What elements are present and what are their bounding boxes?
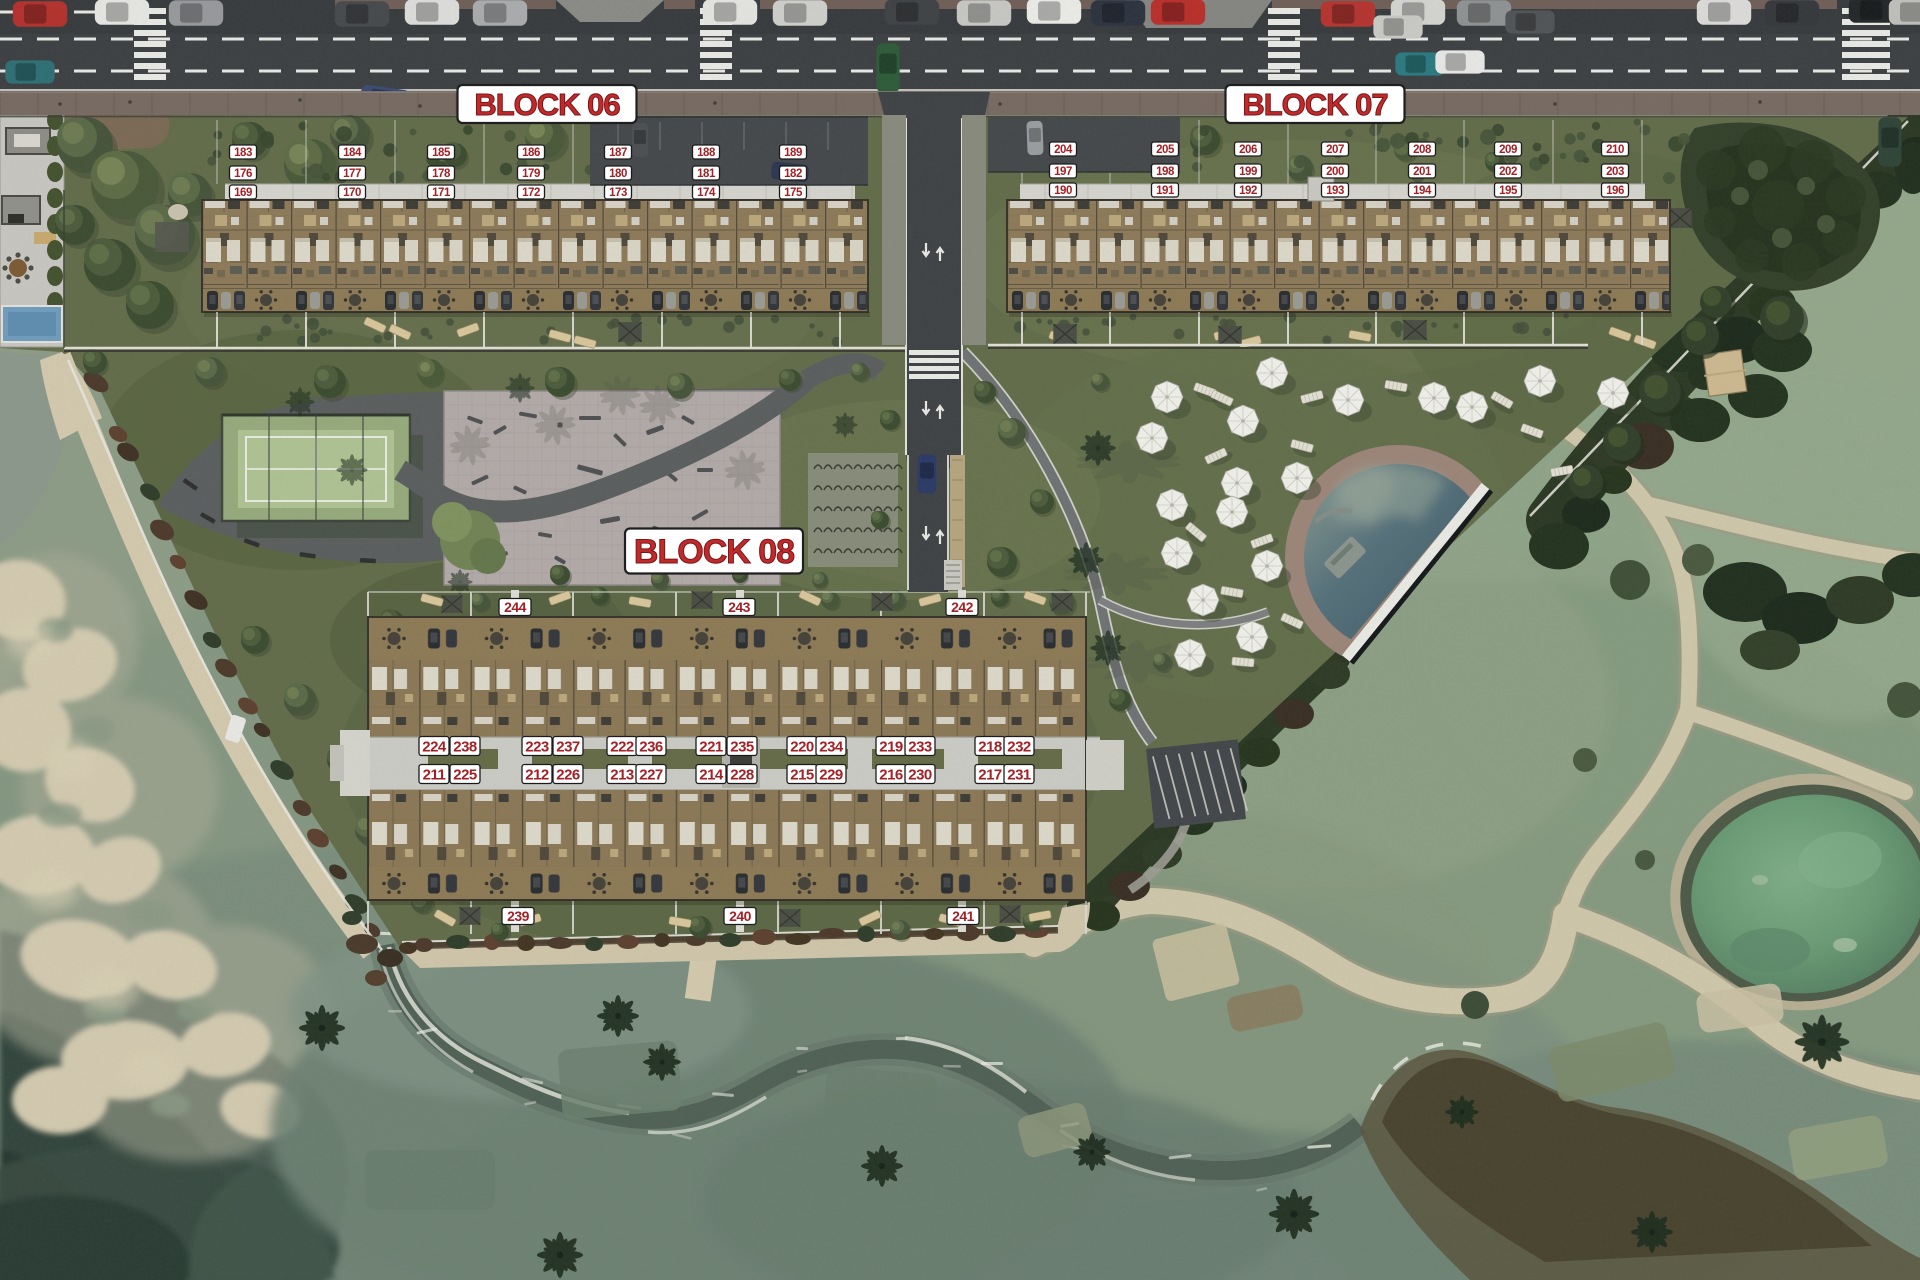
svg-text:221: 221 bbox=[699, 738, 723, 755]
svg-text:229: 229 bbox=[819, 766, 843, 783]
svg-text:217: 217 bbox=[978, 766, 1002, 783]
svg-text:190: 190 bbox=[1054, 185, 1072, 197]
svg-text:227: 227 bbox=[639, 766, 663, 783]
svg-text:185: 185 bbox=[432, 147, 451, 159]
svg-text:237: 237 bbox=[556, 738, 580, 755]
svg-text:173: 173 bbox=[609, 187, 627, 199]
svg-text:201: 201 bbox=[1413, 166, 1432, 178]
svg-text:BLOCK 07: BLOCK 07 bbox=[1242, 87, 1387, 122]
svg-text:223: 223 bbox=[525, 738, 549, 755]
svg-text:170: 170 bbox=[343, 187, 361, 199]
svg-text:213: 213 bbox=[610, 766, 634, 783]
svg-text:181: 181 bbox=[697, 168, 716, 180]
svg-text:241: 241 bbox=[952, 908, 975, 924]
svg-text:208: 208 bbox=[1413, 144, 1432, 156]
svg-text:236: 236 bbox=[639, 738, 663, 755]
svg-text:189: 189 bbox=[784, 147, 802, 159]
svg-text:204: 204 bbox=[1054, 144, 1073, 156]
svg-text:244: 244 bbox=[504, 599, 527, 615]
svg-text:174: 174 bbox=[697, 187, 716, 199]
svg-text:233: 233 bbox=[908, 738, 932, 755]
svg-text:179: 179 bbox=[522, 168, 540, 180]
svg-text:234: 234 bbox=[819, 738, 844, 755]
svg-text:228: 228 bbox=[730, 766, 754, 783]
svg-text:187: 187 bbox=[609, 147, 627, 159]
svg-text:178: 178 bbox=[432, 168, 451, 180]
svg-text:186: 186 bbox=[522, 147, 540, 159]
svg-text:238: 238 bbox=[453, 738, 477, 755]
svg-text:225: 225 bbox=[453, 766, 477, 783]
svg-text:226: 226 bbox=[556, 766, 580, 783]
svg-text:205: 205 bbox=[1156, 144, 1175, 156]
svg-text:235: 235 bbox=[730, 738, 754, 755]
svg-text:191: 191 bbox=[1156, 185, 1175, 197]
svg-text:215: 215 bbox=[790, 766, 814, 783]
svg-text:176: 176 bbox=[234, 168, 252, 180]
svg-text:198: 198 bbox=[1156, 166, 1175, 178]
svg-text:182: 182 bbox=[784, 168, 802, 180]
svg-text:195: 195 bbox=[1499, 185, 1518, 197]
svg-text:212: 212 bbox=[525, 766, 549, 783]
svg-text:206: 206 bbox=[1239, 144, 1257, 156]
svg-text:184: 184 bbox=[343, 147, 362, 159]
svg-text:214: 214 bbox=[699, 766, 724, 783]
svg-text:180: 180 bbox=[609, 168, 627, 180]
svg-text:211: 211 bbox=[423, 766, 446, 783]
svg-text:232: 232 bbox=[1007, 738, 1031, 755]
svg-text:171: 171 bbox=[432, 187, 451, 199]
svg-text:219: 219 bbox=[879, 738, 903, 755]
svg-text:224: 224 bbox=[422, 738, 447, 755]
svg-text:193: 193 bbox=[1326, 185, 1344, 197]
svg-text:230: 230 bbox=[908, 766, 932, 783]
svg-text:239: 239 bbox=[507, 908, 530, 924]
svg-text:200: 200 bbox=[1326, 166, 1344, 178]
svg-text:BLOCK 08: BLOCK 08 bbox=[634, 533, 794, 571]
svg-text:218: 218 bbox=[978, 738, 1002, 755]
svg-text:172: 172 bbox=[522, 187, 540, 199]
svg-text:197: 197 bbox=[1054, 166, 1072, 178]
svg-text:202: 202 bbox=[1499, 166, 1517, 178]
svg-text:199: 199 bbox=[1239, 166, 1257, 178]
svg-text:169: 169 bbox=[234, 187, 252, 199]
svg-text:194: 194 bbox=[1413, 185, 1432, 197]
svg-text:222: 222 bbox=[610, 738, 634, 755]
svg-text:243: 243 bbox=[728, 599, 751, 615]
svg-text:209: 209 bbox=[1499, 144, 1517, 156]
svg-text:240: 240 bbox=[729, 908, 752, 924]
svg-text:207: 207 bbox=[1326, 144, 1344, 156]
svg-text:220: 220 bbox=[790, 738, 814, 755]
svg-text:242: 242 bbox=[951, 599, 974, 615]
svg-text:BLOCK 06: BLOCK 06 bbox=[474, 87, 620, 122]
svg-text:196: 196 bbox=[1606, 185, 1624, 197]
svg-text:210: 210 bbox=[1606, 144, 1624, 156]
svg-text:231: 231 bbox=[1007, 766, 1031, 783]
svg-text:177: 177 bbox=[343, 168, 361, 180]
svg-text:203: 203 bbox=[1606, 166, 1624, 178]
svg-text:188: 188 bbox=[697, 147, 716, 159]
svg-text:175: 175 bbox=[784, 187, 803, 199]
svg-text:192: 192 bbox=[1239, 185, 1257, 197]
svg-text:183: 183 bbox=[234, 147, 252, 159]
svg-text:216: 216 bbox=[879, 766, 903, 783]
